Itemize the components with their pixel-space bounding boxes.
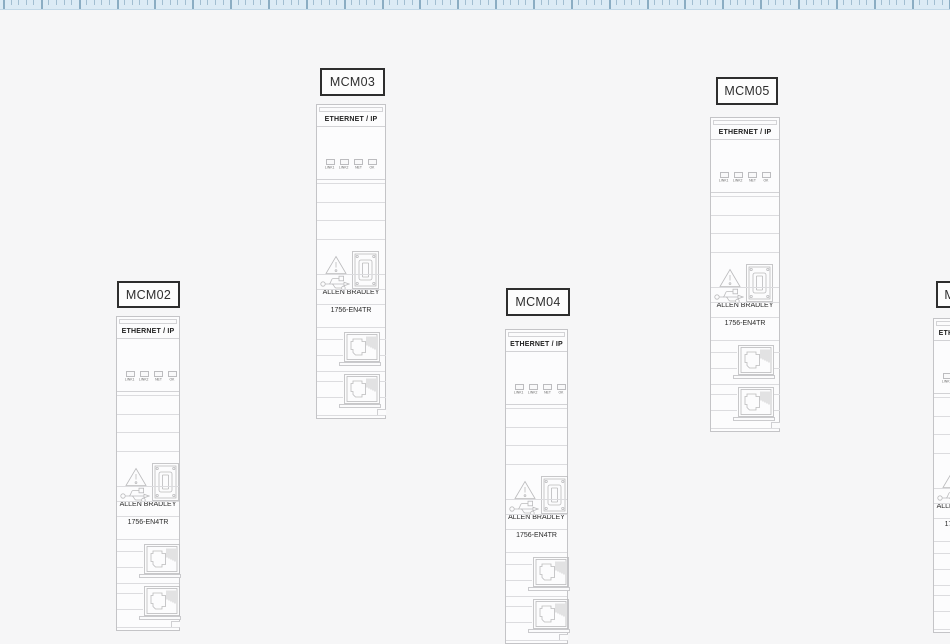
ruler-minor-tick bbox=[480, 0, 481, 5]
separator-line bbox=[711, 233, 779, 234]
led-label: NET bbox=[749, 179, 756, 183]
separator-line bbox=[711, 302, 779, 303]
ruler-major-tick bbox=[154, 0, 156, 9]
ruler-minor-tick bbox=[412, 0, 413, 5]
device-tag[interactable]: MCM03 bbox=[320, 68, 385, 96]
led-lamp bbox=[529, 384, 538, 390]
ruler-major-tick bbox=[382, 0, 384, 9]
separator-line bbox=[934, 453, 950, 454]
ruler-minor-tick bbox=[404, 0, 405, 5]
led-label: LINK2 bbox=[528, 391, 537, 395]
led-lamp bbox=[515, 384, 524, 390]
ruler-major-tick bbox=[874, 0, 876, 9]
led-net: NET bbox=[353, 159, 363, 172]
separator-line bbox=[711, 428, 779, 429]
module-body[interactable]: ETHERNET / IP LINK1LINK2NETOK bbox=[710, 117, 780, 432]
separator-line bbox=[711, 192, 779, 193]
ruler-major-tick bbox=[684, 0, 686, 9]
ruler-minor-tick bbox=[488, 0, 489, 5]
led-link1: LINK1 bbox=[125, 371, 135, 384]
led-net: NET bbox=[542, 384, 552, 397]
separator-line bbox=[506, 351, 567, 352]
ruler-major-tick bbox=[41, 0, 43, 9]
ruler-minor-tick bbox=[26, 0, 27, 5]
separator-line bbox=[506, 529, 567, 530]
led-lamp bbox=[720, 172, 729, 178]
sd-connector-icon bbox=[352, 251, 379, 289]
ruler-minor-tick bbox=[541, 0, 542, 5]
separator-line bbox=[711, 287, 779, 288]
separator-line bbox=[506, 552, 567, 553]
separator-line bbox=[317, 304, 385, 305]
ruler-minor-tick bbox=[465, 0, 466, 5]
separator-line bbox=[934, 518, 950, 519]
ruler-minor-tick bbox=[207, 0, 208, 5]
separator-line bbox=[506, 606, 532, 607]
sd-connector-icon bbox=[152, 463, 179, 501]
device-tag-text: MCM06 bbox=[944, 288, 950, 302]
led-lamp bbox=[168, 371, 177, 377]
warning-icon bbox=[942, 469, 950, 489]
ruler-minor-tick bbox=[866, 0, 867, 5]
ruler-major-tick bbox=[647, 0, 649, 9]
ruler-major-tick bbox=[230, 0, 232, 9]
ruler-minor-tick bbox=[775, 0, 776, 5]
ruler-minor-tick bbox=[518, 0, 519, 5]
ruler-minor-tick bbox=[427, 0, 428, 5]
separator-line bbox=[317, 179, 385, 180]
separator-line bbox=[117, 593, 143, 594]
led-label: OK bbox=[764, 179, 769, 183]
ruler-minor-tick bbox=[843, 0, 844, 5]
ruler-minor-tick bbox=[889, 0, 890, 5]
ruler-minor-tick bbox=[359, 0, 360, 5]
separator-line bbox=[934, 434, 950, 435]
model-text: 1756-EN4TR bbox=[117, 519, 179, 526]
ruler-minor-tick bbox=[132, 0, 133, 5]
ruler-minor-tick bbox=[919, 0, 920, 5]
led-lamp bbox=[140, 371, 149, 377]
device-tag[interactable]: MCM04 bbox=[506, 288, 570, 316]
device-tag[interactable]: MCM06 bbox=[936, 281, 950, 308]
ethernet-port-icon bbox=[344, 332, 380, 362]
ethernet-port-icon bbox=[144, 586, 180, 616]
separator-line bbox=[506, 514, 567, 515]
ruler-minor-tick bbox=[578, 0, 579, 5]
sd-connector-icon bbox=[541, 476, 568, 514]
separator-line bbox=[117, 391, 179, 392]
led-label: LINK1 bbox=[325, 166, 334, 170]
separator-line bbox=[317, 415, 385, 416]
ruler-minor-tick bbox=[828, 0, 829, 5]
ruler-minor-tick bbox=[904, 0, 905, 5]
ruler-minor-tick bbox=[896, 0, 897, 5]
separator-line bbox=[506, 499, 567, 500]
ruler-major-tick bbox=[495, 0, 497, 9]
separator-line bbox=[774, 352, 780, 353]
warning-icon bbox=[514, 480, 536, 500]
port-base bbox=[733, 375, 775, 379]
model-text: 1756-EN4TR bbox=[711, 320, 779, 327]
separator-line bbox=[317, 397, 343, 398]
ruler-major-tick bbox=[344, 0, 346, 9]
model-text: 1756-EN4TR bbox=[506, 532, 567, 539]
ethernet-port-icon bbox=[533, 557, 569, 587]
ruler-minor-tick bbox=[124, 0, 125, 5]
ruler-minor-tick bbox=[548, 0, 549, 5]
separator-line bbox=[774, 410, 780, 411]
port-base bbox=[139, 616, 181, 620]
ruler-minor-tick bbox=[177, 0, 178, 5]
ruler-major-tick bbox=[609, 0, 611, 9]
ruler-minor-tick bbox=[397, 0, 398, 5]
ethernet-port-icon bbox=[738, 345, 774, 375]
module-body[interactable]: ETHERNET / IP LINK1LINK2NETOK bbox=[316, 104, 386, 419]
separator-line bbox=[117, 414, 179, 415]
ruler-minor-tick bbox=[745, 0, 746, 5]
ruler-minor-tick bbox=[525, 0, 526, 5]
led-label: OK bbox=[370, 166, 375, 170]
ruler-minor-tick bbox=[329, 0, 330, 5]
separator-line bbox=[934, 541, 950, 542]
ruler-minor-tick bbox=[291, 0, 292, 5]
separator-line bbox=[934, 585, 950, 586]
separator-line bbox=[934, 340, 950, 341]
separator-line bbox=[117, 486, 179, 487]
ruler-major-tick bbox=[836, 0, 838, 9]
ruler-major-tick bbox=[79, 0, 81, 9]
ruler-minor-tick bbox=[616, 0, 617, 5]
separator-line bbox=[317, 239, 385, 240]
led-indicator-row: LINK1LINK2NETOK bbox=[942, 373, 950, 386]
ruler-minor-tick bbox=[321, 0, 322, 5]
ruler-major-tick bbox=[798, 0, 800, 9]
device-tag[interactable]: MCM02 bbox=[117, 281, 180, 308]
ruler-minor-tick bbox=[109, 0, 110, 5]
led-label: NET bbox=[155, 378, 162, 382]
separator-line bbox=[934, 488, 950, 489]
separator-line bbox=[117, 551, 143, 552]
led-label: LINK1 bbox=[942, 380, 950, 384]
ruler-minor-tick bbox=[813, 0, 814, 5]
separator-line bbox=[117, 627, 179, 628]
ruler-minor-tick bbox=[669, 0, 670, 5]
ruler-minor-tick bbox=[586, 0, 587, 5]
separator-line bbox=[711, 410, 737, 411]
led-lamp bbox=[762, 172, 771, 178]
ruler-minor-tick bbox=[33, 0, 34, 5]
ruler-minor-tick bbox=[147, 0, 148, 5]
separator-line bbox=[317, 220, 385, 221]
ruler-minor-tick bbox=[556, 0, 557, 5]
led-ok: OK bbox=[556, 384, 566, 397]
ruler-minor-tick bbox=[276, 0, 277, 5]
port-base bbox=[339, 362, 381, 366]
ruler-minor-tick bbox=[563, 0, 564, 5]
separator-line bbox=[380, 355, 386, 356]
led-net: NET bbox=[747, 172, 757, 185]
ruler-minor-tick bbox=[730, 0, 731, 5]
ruler-minor-tick bbox=[215, 0, 216, 5]
led-lamp bbox=[943, 373, 950, 379]
ruler-minor-tick bbox=[442, 0, 443, 5]
separator-line bbox=[317, 355, 343, 356]
separator-line bbox=[506, 427, 567, 428]
separator-line bbox=[317, 381, 343, 382]
ruler-major-tick bbox=[268, 0, 270, 9]
ruler-minor-tick bbox=[783, 0, 784, 5]
separator-line bbox=[117, 451, 179, 452]
port-base bbox=[339, 404, 381, 408]
ruler-minor-tick bbox=[185, 0, 186, 5]
led-label: OK bbox=[170, 378, 175, 382]
led-indicator-row: LINK1LINK2NETOK bbox=[719, 172, 771, 185]
ruler-minor-tick bbox=[313, 0, 314, 5]
ruler-minor-tick bbox=[624, 0, 625, 5]
ruler-minor-tick bbox=[881, 0, 882, 5]
separator-line bbox=[711, 215, 779, 216]
led-link1: LINK1 bbox=[719, 172, 729, 185]
led-label: LINK1 bbox=[514, 391, 523, 395]
led-link1: LINK1 bbox=[942, 373, 950, 386]
ruler-minor-tick bbox=[223, 0, 224, 5]
separator-line bbox=[934, 553, 950, 554]
separator-line bbox=[317, 202, 385, 203]
separator-line bbox=[506, 564, 532, 565]
separator-line bbox=[117, 609, 143, 610]
ethernet-port-icon bbox=[144, 544, 180, 574]
sd-connector-icon bbox=[746, 264, 773, 302]
led-lamp bbox=[748, 172, 757, 178]
ruler-minor-tick bbox=[859, 0, 860, 5]
separator-line bbox=[117, 583, 179, 584]
separator-line bbox=[380, 339, 386, 340]
separator-line bbox=[117, 567, 143, 568]
led-link1: LINK1 bbox=[514, 384, 524, 397]
separator-line bbox=[117, 516, 179, 517]
usb-icon bbox=[120, 485, 150, 502]
separator-line bbox=[711, 317, 779, 318]
led-indicator-row: LINK1LINK2NETOK bbox=[514, 384, 566, 397]
ruler-minor-tick bbox=[639, 0, 640, 5]
ruler-major-tick bbox=[912, 0, 914, 9]
led-lamp bbox=[543, 384, 552, 390]
ruler-minor-tick bbox=[806, 0, 807, 5]
led-link1: LINK1 bbox=[325, 159, 335, 172]
ruler-minor-tick bbox=[101, 0, 102, 5]
led-ok: OK bbox=[367, 159, 377, 172]
device-tag-text: MCM03 bbox=[330, 75, 375, 89]
led-indicator-row: LINK1LINK2NETOK bbox=[325, 159, 377, 172]
separator-line bbox=[506, 622, 532, 623]
led-link2: LINK2 bbox=[139, 371, 149, 384]
separator-line bbox=[317, 126, 385, 127]
module-body[interactable]: ETHERNET / IP LINK1LINK2NETOK bbox=[116, 316, 180, 631]
ethernet-ip-header: ETHERNET / IP bbox=[317, 112, 385, 126]
ruler-minor-tick bbox=[662, 0, 663, 5]
led-label: LINK2 bbox=[139, 378, 148, 382]
separator-line bbox=[711, 252, 779, 253]
ruler-minor-tick bbox=[374, 0, 375, 5]
ruler-minor-tick bbox=[737, 0, 738, 5]
ruler-minor-tick bbox=[707, 0, 708, 5]
led-link2: LINK2 bbox=[733, 172, 743, 185]
ruler-minor-tick bbox=[768, 0, 769, 5]
device-tag-text: MCM04 bbox=[515, 295, 560, 309]
separator-line bbox=[711, 394, 737, 395]
brand-text: ALLEN BRADLEY bbox=[934, 503, 950, 510]
ethernet-port-icon bbox=[533, 599, 569, 629]
ruler-minor-tick bbox=[389, 0, 390, 5]
ruler-minor-tick bbox=[18, 0, 19, 5]
module-body[interactable]: ETHERNET / IP LINK1LINK2NETOK bbox=[505, 329, 568, 644]
ruler-minor-tick bbox=[170, 0, 171, 5]
brand-text: ALLEN BRADLEY bbox=[317, 289, 385, 296]
module-body[interactable]: ETHERNET / IP LINK1LINK2NETOK bbox=[933, 318, 950, 633]
separator-line bbox=[317, 274, 385, 275]
led-ok: OK bbox=[761, 172, 771, 185]
model-text: 1756-EN4TR bbox=[317, 307, 385, 314]
led-label: LINK1 bbox=[125, 378, 134, 382]
ruler-minor-tick bbox=[298, 0, 299, 5]
led-lamp bbox=[354, 159, 363, 165]
model-text: 1756-EN4TR bbox=[934, 521, 950, 528]
ruler-minor-tick bbox=[700, 0, 701, 5]
ruler-minor-tick bbox=[692, 0, 693, 5]
separator-line bbox=[506, 580, 532, 581]
warning-icon bbox=[125, 467, 147, 487]
separator-line bbox=[317, 289, 385, 290]
separator-line bbox=[317, 339, 343, 340]
ruler-minor-tick bbox=[934, 0, 935, 5]
ruler-major-tick bbox=[457, 0, 459, 9]
ruler-minor-tick bbox=[245, 0, 246, 5]
ruler-minor-tick bbox=[472, 0, 473, 5]
usb-icon bbox=[937, 487, 950, 504]
usb-icon bbox=[714, 286, 744, 303]
ruler-minor-tick bbox=[851, 0, 852, 5]
led-label: OK bbox=[559, 391, 564, 395]
device-tag[interactable]: MCM05 bbox=[716, 77, 778, 105]
separator-line bbox=[934, 416, 950, 417]
brand-text: ALLEN BRADLEY bbox=[117, 501, 179, 508]
port-base bbox=[139, 574, 181, 578]
ruler-minor-tick bbox=[48, 0, 49, 5]
separator-line bbox=[317, 371, 385, 372]
separator-line bbox=[711, 340, 779, 341]
usb-icon bbox=[320, 273, 350, 290]
ethernet-ip-header: ETHERNET / IP bbox=[506, 337, 567, 351]
led-lamp bbox=[126, 371, 135, 377]
ruler-major-tick bbox=[306, 0, 308, 9]
led-label: LINK2 bbox=[733, 179, 742, 183]
device-tag-text: MCM05 bbox=[724, 84, 769, 98]
separator-line bbox=[934, 397, 950, 398]
separator-line bbox=[711, 196, 779, 197]
separator-line bbox=[380, 397, 386, 398]
ruler-major-tick bbox=[722, 0, 724, 9]
port-base bbox=[733, 417, 775, 421]
separator-line bbox=[934, 393, 950, 394]
separator-line bbox=[117, 539, 179, 540]
ruler-minor-tick bbox=[11, 0, 12, 5]
led-label: NET bbox=[544, 391, 551, 395]
ruler-minor-tick bbox=[283, 0, 284, 5]
led-indicator-row: LINK1LINK2NETOK bbox=[125, 371, 177, 384]
brand-text: ALLEN BRADLEY bbox=[506, 514, 567, 521]
led-label: LINK1 bbox=[719, 179, 728, 183]
led-link2: LINK2 bbox=[528, 384, 538, 397]
separator-line bbox=[506, 404, 567, 405]
separator-line bbox=[117, 338, 179, 339]
ruler-minor-tick bbox=[715, 0, 716, 5]
ruler-minor-tick bbox=[927, 0, 928, 5]
ruler-minor-tick bbox=[631, 0, 632, 5]
drawing-canvas[interactable]: MCM02 ETHERNET / IP LINK1LINK2NETOK bbox=[0, 0, 950, 437]
separator-line bbox=[934, 569, 950, 570]
ruler-minor-tick bbox=[677, 0, 678, 5]
ruler-major-tick bbox=[419, 0, 421, 9]
ruler-minor-tick bbox=[64, 0, 65, 5]
ruler-minor-tick bbox=[366, 0, 367, 5]
ruler-minor-tick bbox=[753, 0, 754, 5]
separator-line bbox=[317, 183, 385, 184]
ruler-minor-tick bbox=[503, 0, 504, 5]
separator-line bbox=[711, 384, 779, 385]
separator-line bbox=[117, 395, 179, 396]
port-base bbox=[528, 587, 570, 591]
ethernet-ip-header: ETHERNET / IP bbox=[934, 326, 950, 340]
separator-line bbox=[117, 432, 179, 433]
ruler-minor-tick bbox=[86, 0, 87, 5]
separator-line bbox=[934, 629, 950, 630]
ruler-minor-tick bbox=[351, 0, 352, 5]
warning-icon bbox=[325, 255, 347, 275]
ruler-minor-tick bbox=[821, 0, 822, 5]
separator-line bbox=[711, 139, 779, 140]
led-lamp bbox=[368, 159, 377, 165]
led-label: NET bbox=[355, 166, 362, 170]
led-link2: LINK2 bbox=[339, 159, 349, 172]
ethernet-ip-header: ETHERNET / IP bbox=[117, 324, 179, 338]
ruler-minor-tick bbox=[601, 0, 602, 5]
ruler-minor-tick bbox=[450, 0, 451, 5]
led-label: LINK2 bbox=[339, 166, 348, 170]
ethernet-port-icon bbox=[344, 374, 380, 404]
separator-line bbox=[506, 464, 567, 465]
ruler-minor-tick bbox=[94, 0, 95, 5]
separator-line bbox=[774, 368, 780, 369]
led-ok: OK bbox=[167, 371, 177, 384]
separator-line bbox=[317, 327, 385, 328]
ruler-minor-tick bbox=[260, 0, 261, 5]
led-net: NET bbox=[153, 371, 163, 384]
ruler-major-tick bbox=[533, 0, 535, 9]
ruler-minor-tick bbox=[200, 0, 201, 5]
usb-icon bbox=[509, 498, 539, 515]
separator-line bbox=[774, 394, 780, 395]
separator-line bbox=[711, 352, 737, 353]
led-lamp bbox=[734, 172, 743, 178]
ruler-minor-tick bbox=[510, 0, 511, 5]
ruler-major-tick bbox=[571, 0, 573, 9]
ruler-minor-tick bbox=[56, 0, 57, 5]
separator-line bbox=[506, 445, 567, 446]
led-lamp bbox=[154, 371, 163, 377]
ruler-minor-tick bbox=[790, 0, 791, 5]
ruler-minor-tick bbox=[654, 0, 655, 5]
warning-icon bbox=[719, 268, 741, 288]
